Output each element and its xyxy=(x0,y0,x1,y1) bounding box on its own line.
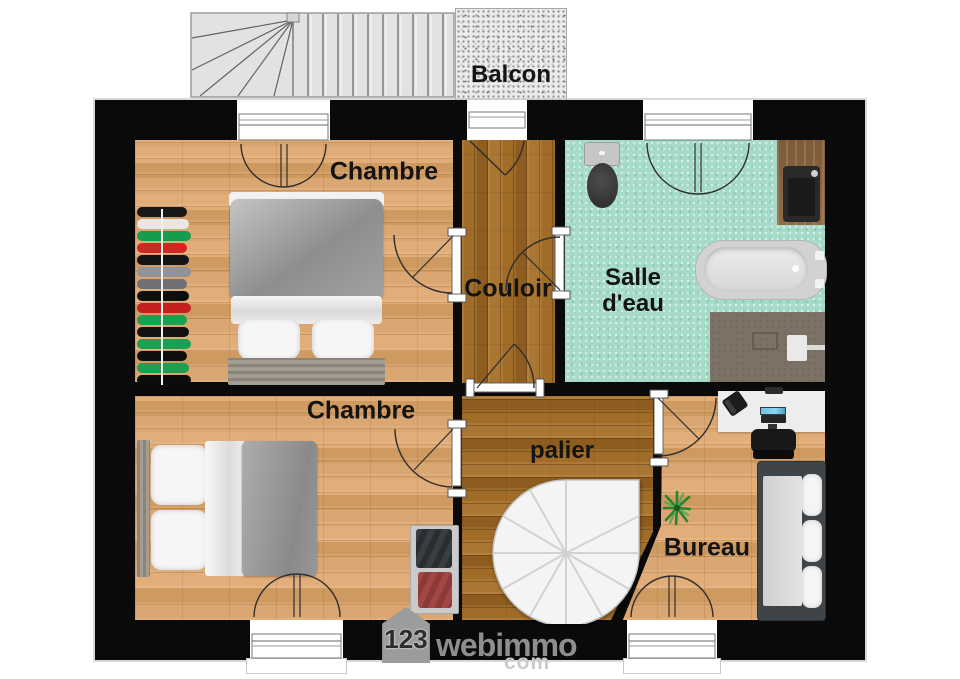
plant xyxy=(662,489,692,526)
washbasin-vanity xyxy=(777,140,825,225)
bed-sheet xyxy=(205,441,245,576)
bed-pillow xyxy=(151,510,207,570)
room-label-chambre-top: Chambre xyxy=(330,158,438,187)
keyboard xyxy=(761,415,786,423)
bathtub-faucet xyxy=(815,251,824,260)
balcony: Balcon xyxy=(455,8,567,102)
bathtub xyxy=(695,240,827,300)
window-chambre-bottom xyxy=(250,620,343,660)
window-sill-bureau xyxy=(623,658,721,674)
bed-duvet xyxy=(242,441,317,576)
window-chambre-top xyxy=(237,100,330,140)
sofa-cushion xyxy=(802,566,822,608)
toilet xyxy=(587,163,618,208)
watermark-suffix: com xyxy=(504,651,550,675)
folded-clothes-red xyxy=(418,572,452,608)
computer-monitor xyxy=(760,407,786,415)
bed-pillow xyxy=(312,318,374,360)
clothes-rack-rail xyxy=(161,209,163,385)
spiral-staircase xyxy=(490,476,642,624)
storage-shelf xyxy=(410,525,459,614)
window-bureau xyxy=(627,620,717,660)
folded-clothes-dark xyxy=(416,529,452,568)
sofa-cushion xyxy=(802,474,822,516)
shower-head xyxy=(787,335,807,361)
double-bed-top xyxy=(228,192,385,385)
balcony-label: Balcon xyxy=(456,61,566,89)
sofa-cushion xyxy=(802,520,822,562)
room-label-bureau: Bureau xyxy=(664,534,750,563)
bed-pillow xyxy=(151,445,207,505)
window-sill-chambre-bottom xyxy=(246,658,347,674)
window-salle-deau xyxy=(643,100,753,140)
desk xyxy=(718,391,825,432)
clothes-rack xyxy=(137,207,191,385)
room-label-palier: palier xyxy=(530,437,594,465)
bathtub-faucet xyxy=(815,279,824,288)
shower xyxy=(710,312,825,382)
bed-headboard xyxy=(137,440,150,577)
bed-headboard xyxy=(228,358,385,385)
room-label-couloir: Couloir xyxy=(464,275,552,304)
desk-phone xyxy=(721,390,748,417)
room-label-chambre-bottom: Chambre xyxy=(307,397,415,426)
double-bed-bottom xyxy=(137,440,317,577)
shower-drain xyxy=(752,332,778,350)
balcony-door-opening xyxy=(467,100,527,140)
washbasin xyxy=(783,166,820,222)
exterior-staircase xyxy=(190,12,455,98)
bed-duvet xyxy=(230,199,383,299)
room-label-salle-deau: Salle d'eau xyxy=(577,265,689,317)
clothes-rack-items xyxy=(137,207,191,385)
watermark-number: 123 xyxy=(380,624,432,655)
sofa xyxy=(758,462,825,620)
faucet xyxy=(811,170,818,177)
bed-pillow xyxy=(238,318,300,360)
floor-plan: Balcon xyxy=(0,0,960,679)
sofa-seat xyxy=(763,476,802,606)
office-chair-back xyxy=(753,450,794,459)
room-couloir xyxy=(462,140,555,383)
